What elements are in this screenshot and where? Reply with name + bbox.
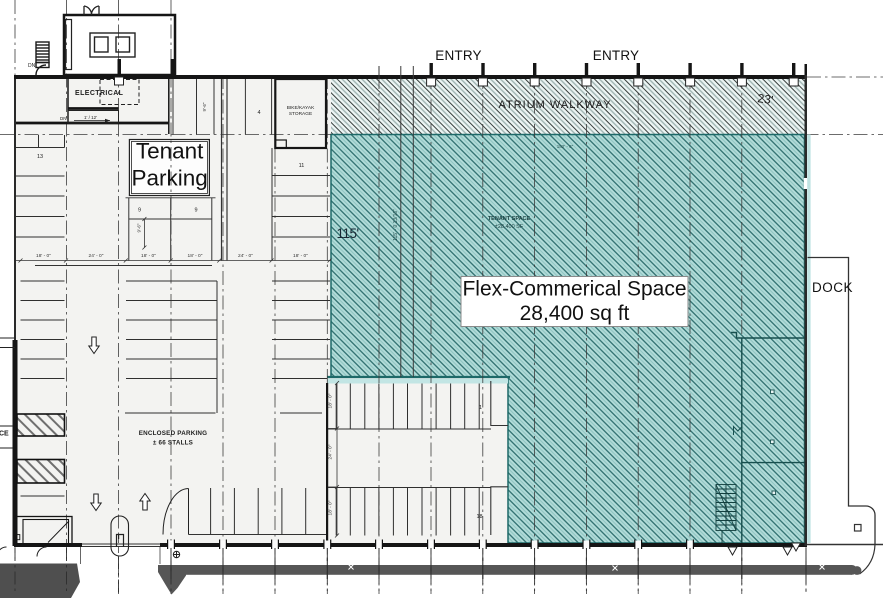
svg-text:13: 13 <box>37 154 43 160</box>
svg-text:Flex-Commerical Space: Flex-Commerical Space <box>462 278 686 301</box>
svg-text:Parking: Parking <box>131 166 207 191</box>
svg-text:23': 23' <box>757 91 774 107</box>
svg-text:1: 1 <box>479 405 482 411</box>
svg-text:24' - 0": 24' - 0" <box>89 253 104 259</box>
svg-text:24' - 0": 24' - 0" <box>238 253 253 259</box>
svg-text:9: 9 <box>138 208 141 214</box>
svg-text:ENCLOSED PARKING: ENCLOSED PARKING <box>139 430 208 437</box>
svg-text:Tenant: Tenant <box>136 139 204 164</box>
svg-text:182' - 6": 182' - 6" <box>557 144 574 149</box>
svg-text:18' - 0": 18' - 0" <box>328 500 334 515</box>
svg-text:1' / 12': 1' / 12' <box>84 115 97 120</box>
svg-text:18' - 0": 18' - 0" <box>36 253 51 259</box>
svg-text:28,400 sq ft: 28,400 sq ft <box>520 302 630 325</box>
svg-text:±28,400 SF: ±28,400 SF <box>495 224 524 230</box>
svg-text:DN: DN <box>28 63 36 69</box>
svg-text:24' - 0": 24' - 0" <box>328 444 334 459</box>
svg-text:DN: DN <box>60 116 67 121</box>
svg-text:± 66 STALLS: ± 66 STALLS <box>153 440 193 447</box>
svg-text:ELECTRICAL: ELECTRICAL <box>75 90 124 97</box>
svg-text:18' - 0": 18' - 0" <box>328 393 334 408</box>
svg-text:18' - 0": 18' - 0" <box>188 253 203 259</box>
svg-text:TENANT SPACE: TENANT SPACE <box>488 216 531 222</box>
svg-text:9'-6": 9'-6" <box>137 223 142 232</box>
svg-text:STORAGE: STORAGE <box>289 111 312 117</box>
svg-text:4: 4 <box>257 110 260 116</box>
svg-text:18' - 0": 18' - 0" <box>293 253 308 259</box>
svg-text:ENTRY: ENTRY <box>435 48 482 63</box>
svg-text:ATRIUM WALKWAY: ATRIUM WALKWAY <box>499 99 612 111</box>
svg-text:115': 115' <box>337 226 359 241</box>
svg-text:18: 18 <box>476 514 482 520</box>
svg-text:ENTRY: ENTRY <box>593 48 640 63</box>
svg-text:9'-6": 9'-6" <box>202 102 207 111</box>
svg-text:9: 9 <box>194 208 197 214</box>
svg-text:18' - 0": 18' - 0" <box>141 253 156 259</box>
svg-text:BIKE/KAYAK: BIKE/KAYAK <box>287 105 315 111</box>
svg-text:CE: CE <box>0 431 9 438</box>
svg-text:115' - 0 13/16": 115' - 0 13/16" <box>393 209 399 241</box>
svg-text:11: 11 <box>299 163 305 169</box>
svg-text:DOCK: DOCK <box>812 280 853 295</box>
